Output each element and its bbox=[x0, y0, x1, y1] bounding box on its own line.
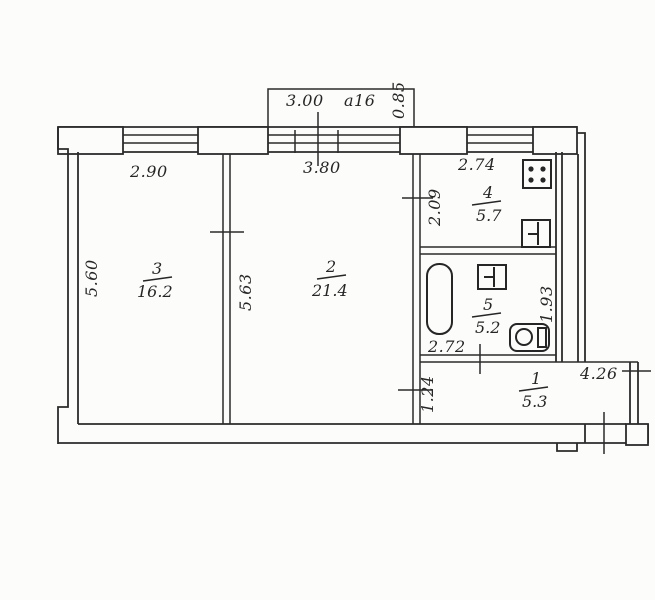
room-number-labels: 3 16.2 2 21.4 4 5.7 5 5.2 1 5.3 bbox=[137, 183, 548, 411]
kitchen-number: 4 bbox=[482, 183, 493, 202]
balcony-code-label: a16 bbox=[344, 91, 375, 110]
hall-height-label: 1.24 bbox=[418, 375, 437, 413]
hall-number: 1 bbox=[531, 369, 541, 388]
balcony-labels: 3.00 a16 0.85 bbox=[286, 81, 408, 119]
bathroom-width-label: 2.72 bbox=[427, 337, 466, 356]
room2-number: 2 bbox=[325, 257, 336, 276]
balcony-depth-label: 0.85 bbox=[389, 81, 408, 119]
bathroom-sink-icon bbox=[478, 265, 506, 289]
hall-area: 5.3 bbox=[522, 392, 547, 411]
room2-area: 21.4 bbox=[311, 281, 348, 300]
floor-plan: 3.00 a16 0.85 2.90 3.80 2.74 5.60 5.63 2… bbox=[0, 0, 655, 600]
wall-pier bbox=[400, 127, 467, 154]
window-kitchen bbox=[467, 135, 533, 143]
wall-pier bbox=[198, 127, 268, 154]
stove-icon bbox=[523, 160, 551, 188]
entry-pier bbox=[626, 424, 648, 445]
room2-width-label: 3.80 bbox=[303, 158, 341, 177]
floor-plan-drawing: 3.00 a16 0.85 2.90 3.80 2.74 5.60 5.63 2… bbox=[0, 0, 655, 600]
bathroom-number: 5 bbox=[483, 295, 493, 314]
balcony-width-label: 3.00 bbox=[286, 91, 324, 110]
room3-number: 3 bbox=[152, 259, 162, 278]
kitchen-sink-icon bbox=[522, 220, 550, 247]
room2-height-label: 5.63 bbox=[236, 273, 255, 311]
window-room2-balcony-door bbox=[268, 135, 400, 143]
wall-pier bbox=[533, 127, 577, 154]
room3-height-label: 5.60 bbox=[82, 259, 101, 297]
bathroom-area: 5.2 bbox=[475, 318, 500, 337]
hall-width-label: 4.26 bbox=[579, 364, 618, 383]
window-room3 bbox=[123, 135, 198, 143]
toilet-icon bbox=[510, 324, 549, 351]
kitchen-width-label: 2.74 bbox=[457, 155, 496, 174]
room3-area: 16.2 bbox=[137, 282, 173, 301]
kitchen-area: 5.7 bbox=[476, 206, 502, 225]
kitchen-height-label: 2.09 bbox=[425, 188, 444, 227]
room3-width-label: 2.90 bbox=[129, 162, 168, 181]
bathroom-height-label: 1.93 bbox=[537, 285, 556, 323]
entry-step bbox=[557, 443, 577, 451]
bathtub-icon bbox=[427, 264, 452, 334]
